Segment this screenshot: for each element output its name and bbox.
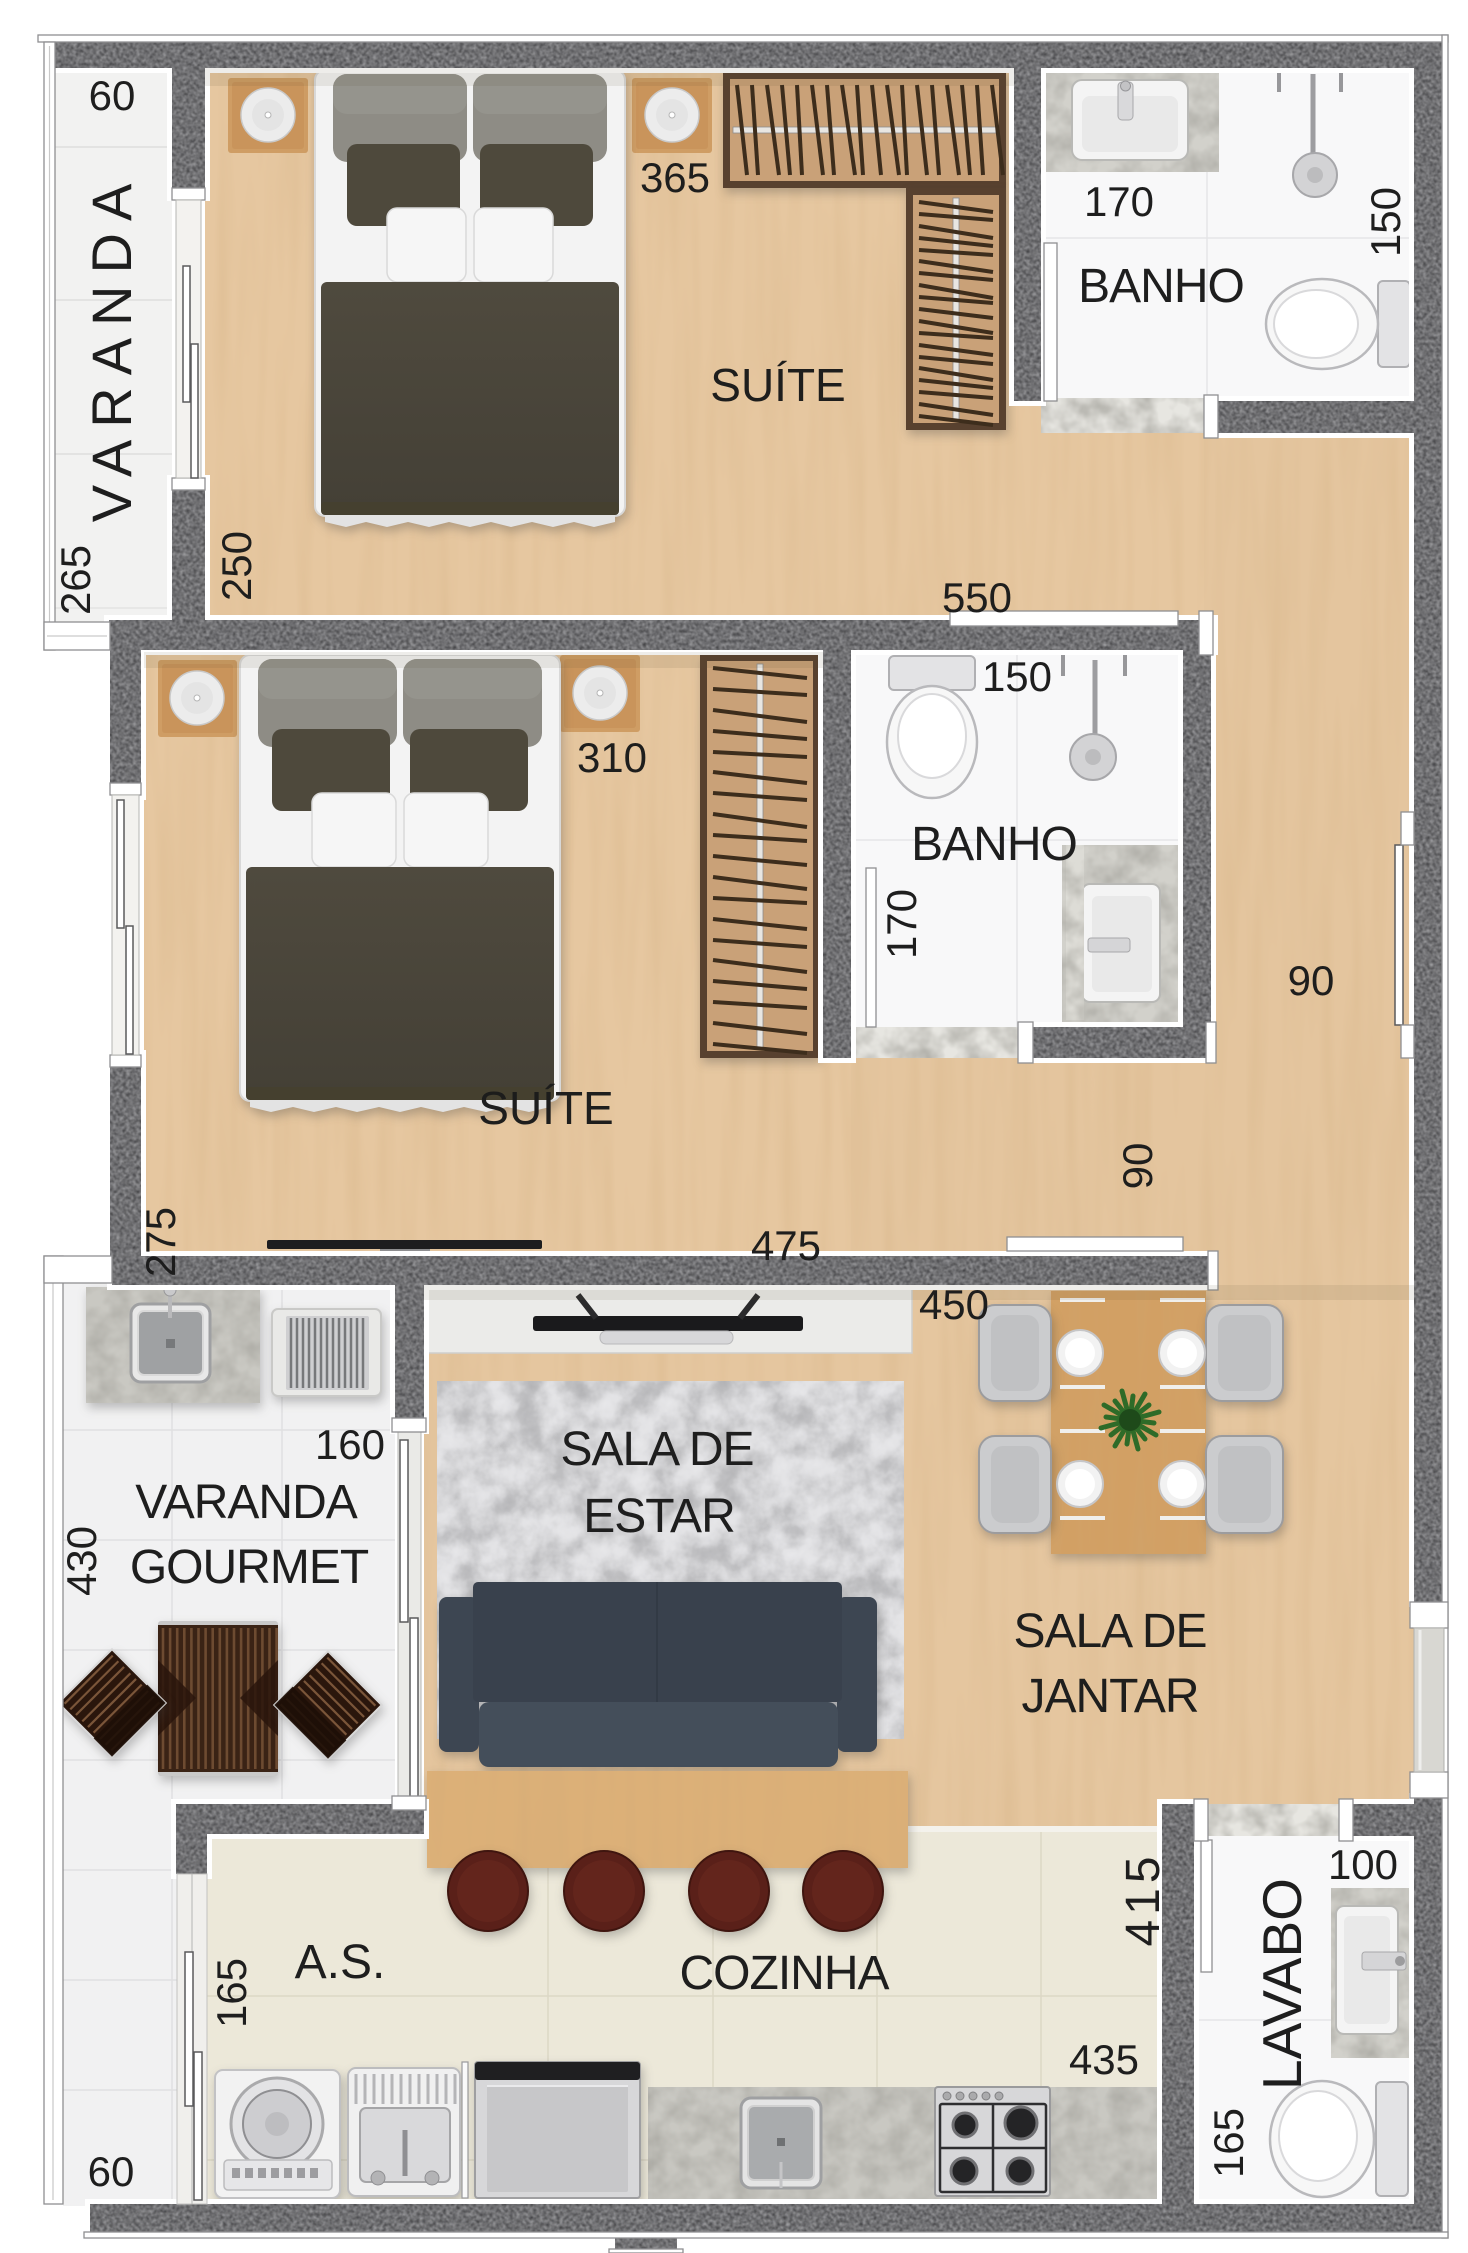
svg-text:265: 265 — [52, 545, 99, 615]
svg-text:550: 550 — [942, 574, 1012, 621]
svg-text:170: 170 — [1084, 178, 1154, 225]
svg-text:90: 90 — [1114, 1143, 1161, 1190]
svg-text:SUÍTE: SUÍTE — [478, 1082, 613, 1134]
svg-text:SALA DE: SALA DE — [560, 1423, 753, 1476]
svg-text:430: 430 — [58, 1526, 105, 1596]
svg-text:90: 90 — [1288, 957, 1335, 1004]
svg-text:165: 165 — [208, 1958, 255, 2028]
svg-text:GOURMET: GOURMET — [130, 1541, 369, 1594]
svg-text:BANHO: BANHO — [911, 818, 1077, 871]
svg-text:150: 150 — [982, 653, 1052, 700]
svg-text:VARANDA: VARANDA — [80, 172, 143, 523]
svg-text:COZINHA: COZINHA — [680, 1947, 890, 2000]
svg-text:415: 415 — [1117, 1851, 1170, 1946]
svg-text:250: 250 — [213, 531, 260, 601]
svg-text:SALA DE: SALA DE — [1013, 1605, 1206, 1658]
svg-text:165: 165 — [1205, 2108, 1252, 2178]
svg-text:SUÍTE: SUÍTE — [710, 359, 845, 411]
svg-text:LAVABO: LAVABO — [1251, 1878, 1313, 2090]
svg-text:JANTAR: JANTAR — [1021, 1670, 1198, 1723]
svg-text:A.S.: A.S. — [295, 1936, 386, 1989]
svg-text:VARANDA: VARANDA — [135, 1476, 357, 1529]
svg-text:450: 450 — [919, 1281, 989, 1328]
svg-text:475: 475 — [751, 1222, 821, 1269]
svg-text:365: 365 — [640, 154, 710, 201]
svg-text:170: 170 — [878, 889, 925, 959]
svg-text:435: 435 — [1069, 2036, 1139, 2083]
svg-text:ESTAR: ESTAR — [583, 1490, 734, 1543]
svg-text:160: 160 — [315, 1421, 385, 1468]
svg-text:275: 275 — [137, 1207, 184, 1277]
svg-text:60: 60 — [88, 2148, 135, 2195]
svg-text:150: 150 — [1362, 187, 1409, 257]
svg-text:60: 60 — [89, 72, 136, 119]
svg-text:310: 310 — [577, 734, 647, 781]
svg-text:BANHO: BANHO — [1078, 260, 1244, 313]
svg-text:100: 100 — [1328, 1841, 1398, 1888]
